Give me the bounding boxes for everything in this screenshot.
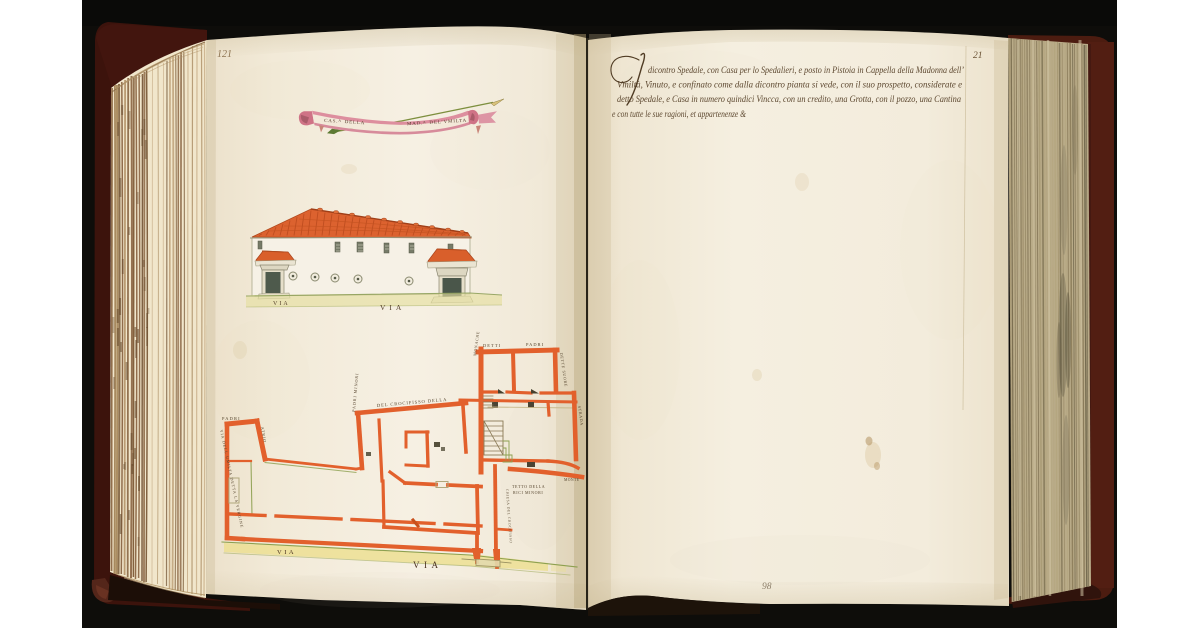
svg-text:dicontro Spedale, con Casa per: dicontro Spedale, con Casa per lo Spedal… [648,65,964,75]
svg-text:Vmiltà, Vinuto, e confinato co: Vmiltà, Vinuto, e confinato come dalla d… [617,80,962,90]
svg-text:121: 121 [217,49,232,60]
svg-text:TETTO DELLA: TETTO DELLA [512,484,545,489]
svg-text:21: 21 [973,51,983,61]
svg-text:DETTI: DETTI [483,343,501,348]
svg-text:PADRI: PADRI [222,416,241,421]
svg-text:e con tutte le sue ragioni, et: e con tutte le sue ragioni, et appartene… [612,109,746,119]
svg-text:98: 98 [762,582,772,592]
svg-text:PADRI: PADRI [526,342,544,347]
svg-text:VIA: VIA [277,549,296,556]
svg-text:detto Spedale, e Casa in numer: detto Spedale, e Casa in numero quindici… [617,94,961,104]
svg-text:VIA: VIA [413,560,443,570]
svg-text:VIA: VIA [273,301,290,307]
svg-text:VIA: VIA [380,303,405,312]
svg-text:MONTE: MONTE [564,478,580,482]
svg-text:RICI MINORI: RICI MINORI [513,490,543,495]
